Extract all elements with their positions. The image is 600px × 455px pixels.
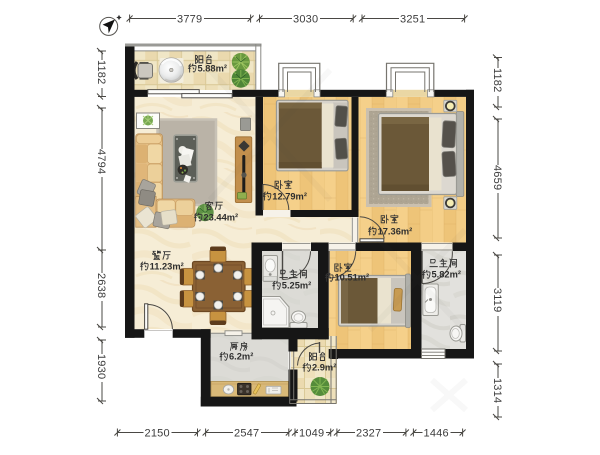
svg-text:3030: 3030	[293, 14, 318, 26]
svg-text:5.25m²: 5.25m²	[282, 281, 311, 291]
svg-text:2638: 2638	[95, 273, 107, 298]
svg-text:2.9m²: 2.9m²	[312, 363, 336, 373]
svg-text:5.88m²: 5.88m²	[198, 63, 227, 73]
svg-text:4794: 4794	[95, 149, 107, 174]
svg-text:1049: 1049	[299, 428, 324, 440]
svg-text:3779: 3779	[177, 14, 202, 26]
svg-text:23.44m²: 23.44m²	[204, 212, 239, 222]
svg-text:3251: 3251	[400, 14, 425, 26]
svg-text:5.82m²: 5.82m²	[432, 270, 461, 280]
svg-text:2150: 2150	[145, 428, 170, 440]
svg-text:4659: 4659	[491, 165, 503, 190]
svg-text:1446: 1446	[424, 428, 449, 440]
svg-text:12.79m²: 12.79m²	[272, 191, 307, 201]
svg-text:11.23m²: 11.23m²	[150, 261, 184, 271]
svg-text:1930: 1930	[95, 354, 107, 379]
svg-text:3119: 3119	[491, 288, 503, 312]
svg-text:2547: 2547	[234, 428, 259, 440]
svg-text:2327: 2327	[356, 428, 381, 440]
svg-text:1182: 1182	[95, 60, 107, 84]
svg-text:1314: 1314	[491, 378, 503, 403]
svg-text:6.2m²: 6.2m²	[229, 352, 253, 362]
svg-text:17.36m²: 17.36m²	[378, 226, 413, 236]
svg-text:1182: 1182	[491, 68, 503, 92]
svg-text:10.51m²: 10.51m²	[335, 273, 370, 283]
